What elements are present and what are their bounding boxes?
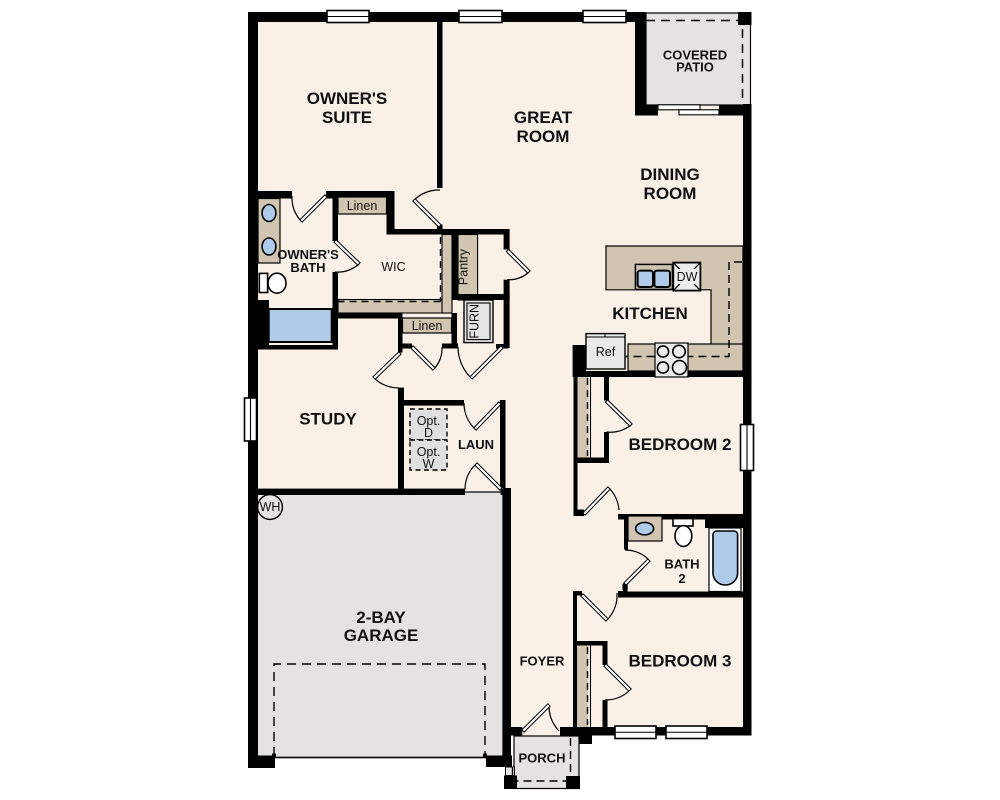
svg-text:GREAT: GREAT <box>514 108 573 127</box>
svg-text:SUITE: SUITE <box>322 108 372 127</box>
svg-text:Ref: Ref <box>596 345 616 359</box>
svg-text:Pantry: Pantry <box>457 248 471 285</box>
svg-text:DINING: DINING <box>640 165 700 184</box>
svg-text:2: 2 <box>678 571 685 586</box>
svg-text:BATH: BATH <box>664 557 699 572</box>
svg-text:LAUN: LAUN <box>458 437 494 452</box>
svg-text:PATIO: PATIO <box>676 60 714 75</box>
svg-text:ROOM: ROOM <box>517 127 570 146</box>
svg-text:D: D <box>424 426 433 440</box>
svg-text:2-BAY: 2-BAY <box>356 608 406 627</box>
svg-text:FURN: FURN <box>468 304 482 339</box>
svg-text:BEDROOM 2: BEDROOM 2 <box>629 435 732 454</box>
svg-text:GARAGE: GARAGE <box>344 626 419 645</box>
svg-text:BATH: BATH <box>290 260 325 275</box>
svg-text:WIC: WIC <box>381 260 405 274</box>
svg-text:FOYER: FOYER <box>520 654 565 669</box>
svg-text:OWNER'S: OWNER'S <box>307 89 388 108</box>
svg-text:STUDY: STUDY <box>299 410 357 429</box>
svg-text:PORCH: PORCH <box>519 751 566 766</box>
svg-text:DW: DW <box>677 270 698 284</box>
svg-text:WH: WH <box>260 500 281 514</box>
svg-text:Linen: Linen <box>347 199 378 213</box>
svg-text:BEDROOM 3: BEDROOM 3 <box>629 652 732 671</box>
svg-text:W: W <box>423 457 435 471</box>
svg-text:ROOM: ROOM <box>644 184 697 203</box>
svg-text:KITCHEN: KITCHEN <box>612 304 688 323</box>
svg-text:Linen: Linen <box>412 319 443 333</box>
